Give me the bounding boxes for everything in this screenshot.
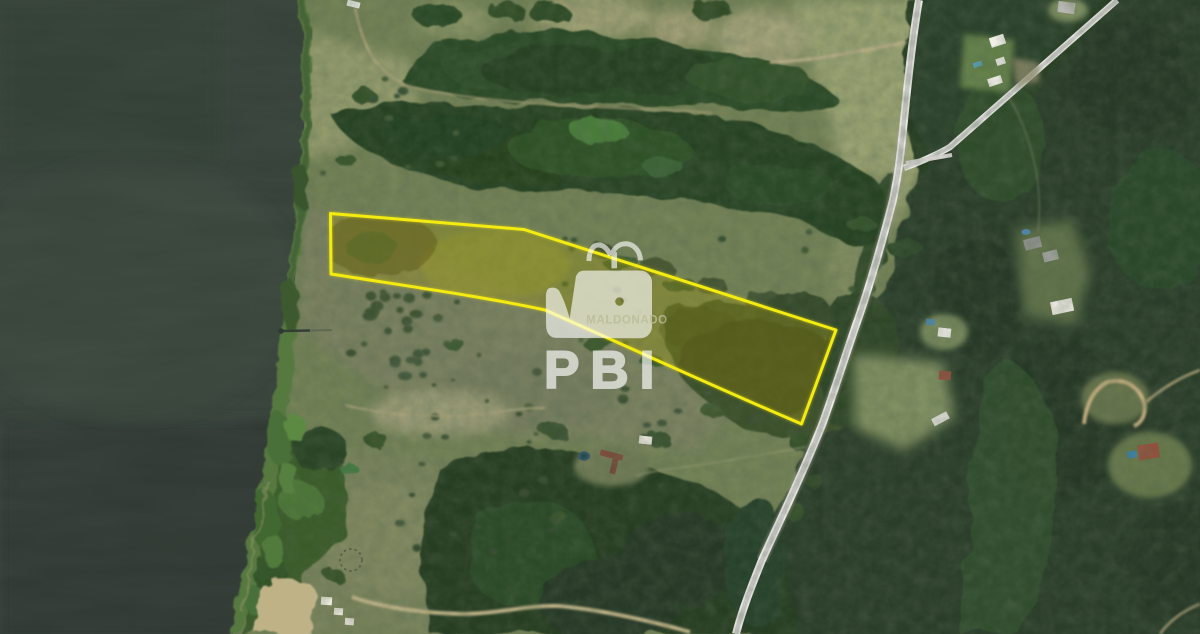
svg-text:MALDONADO: MALDONADO (586, 315, 667, 327)
svg-text:PBI: PBI (544, 341, 665, 400)
